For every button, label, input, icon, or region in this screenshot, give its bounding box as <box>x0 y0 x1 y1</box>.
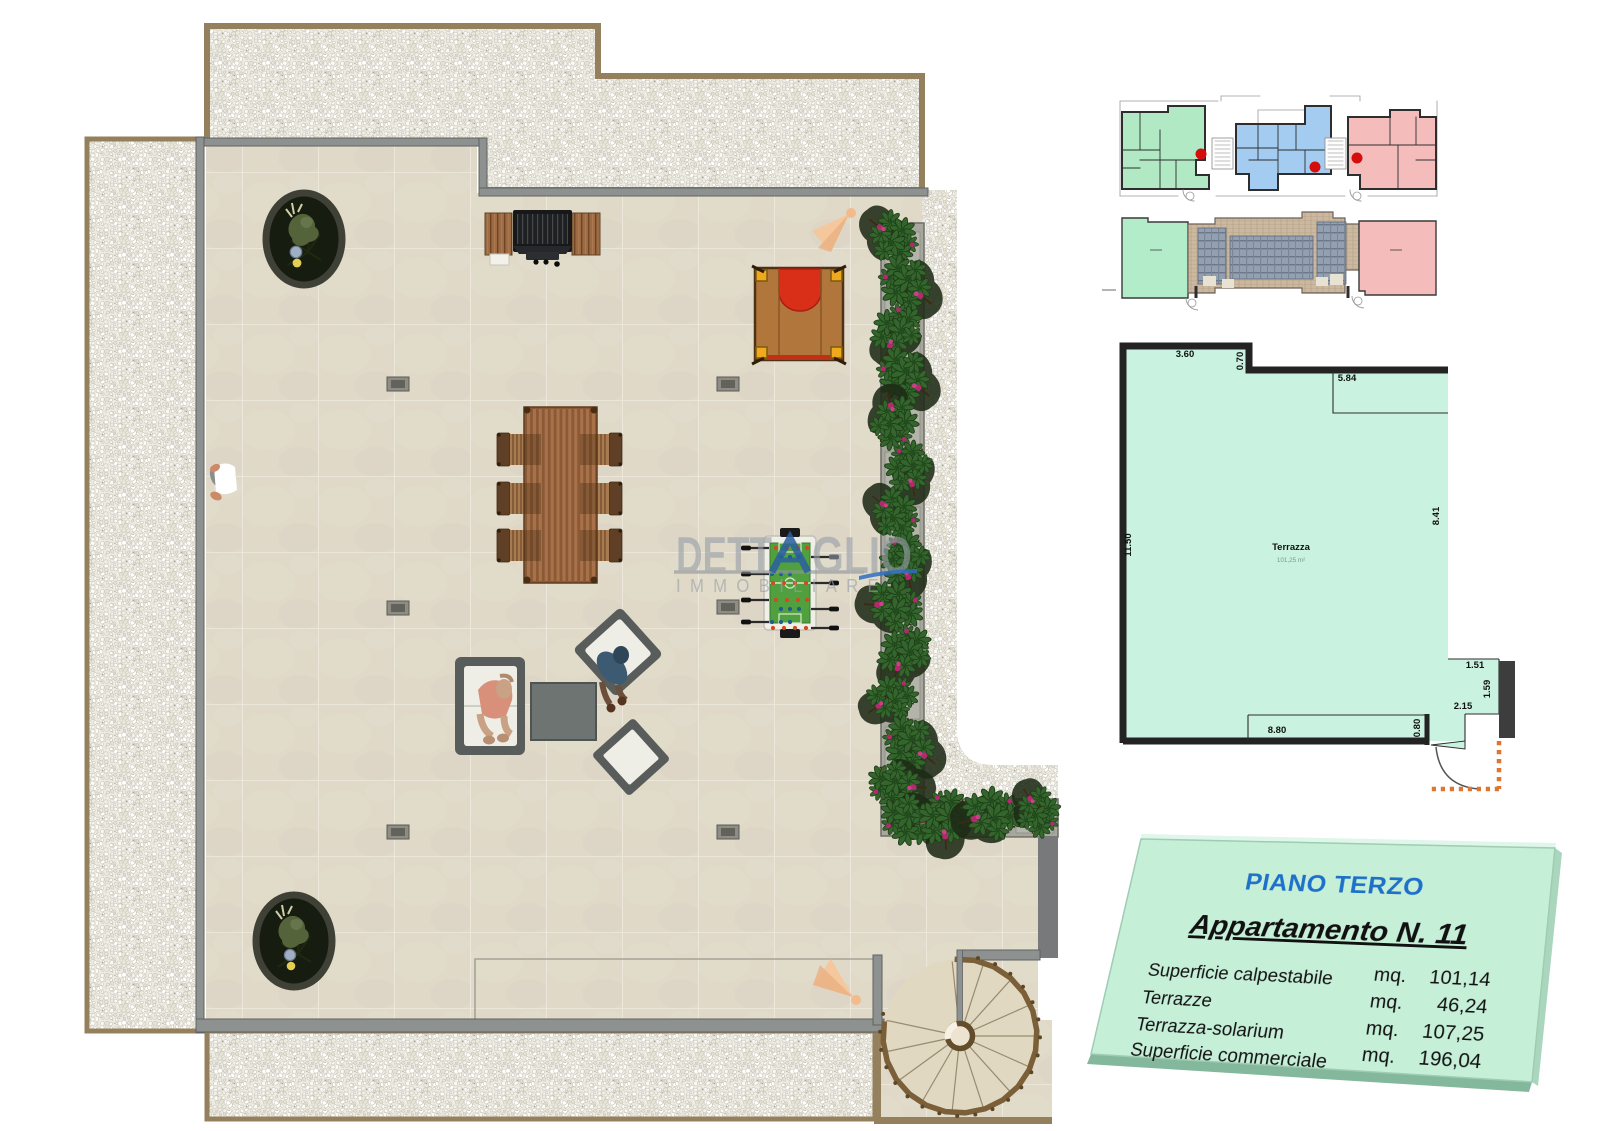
svg-text:0.70: 0.70 <box>1235 352 1246 371</box>
svg-text:11.50: 11.50 <box>1123 533 1134 556</box>
svg-text:5.84: 5.84 <box>1338 373 1357 384</box>
svg-text:1.59: 1.59 <box>1482 680 1493 699</box>
svg-text:1.51: 1.51 <box>1466 660 1485 671</box>
svg-text:101,25 m²: 101,25 m² <box>1277 557 1305 564</box>
svg-text:0.80: 0.80 <box>1412 719 1423 738</box>
svg-text:Terrazza: Terrazza <box>1272 542 1311 553</box>
svg-text:8.41: 8.41 <box>1431 506 1442 525</box>
svg-text:2.15: 2.15 <box>1454 701 1473 712</box>
svg-text:3.60: 3.60 <box>1176 349 1195 360</box>
svg-text:8.80: 8.80 <box>1268 725 1287 736</box>
svg-text:IMMOBILIARE: IMMOBILIARE <box>676 576 888 596</box>
